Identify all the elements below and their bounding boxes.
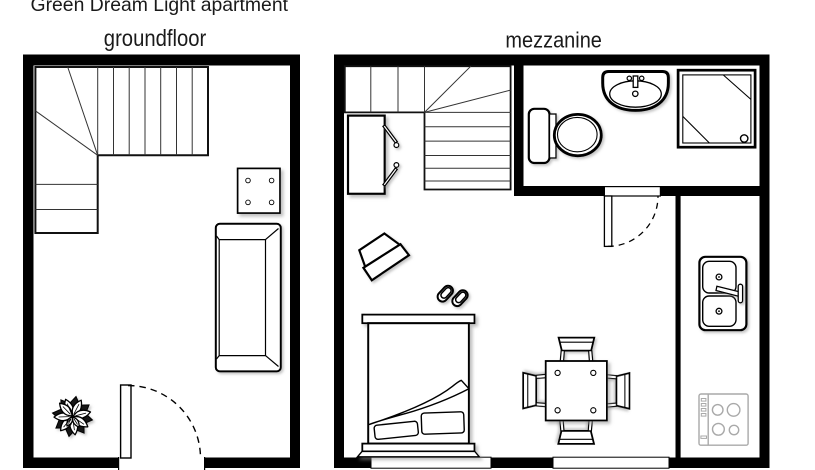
svg-text:groundfloor: groundfloor xyxy=(104,25,207,51)
svg-text:Green Dream Light apartment: Green Dream Light apartment xyxy=(31,0,289,16)
svg-text:mezzanine: mezzanine xyxy=(505,28,602,53)
